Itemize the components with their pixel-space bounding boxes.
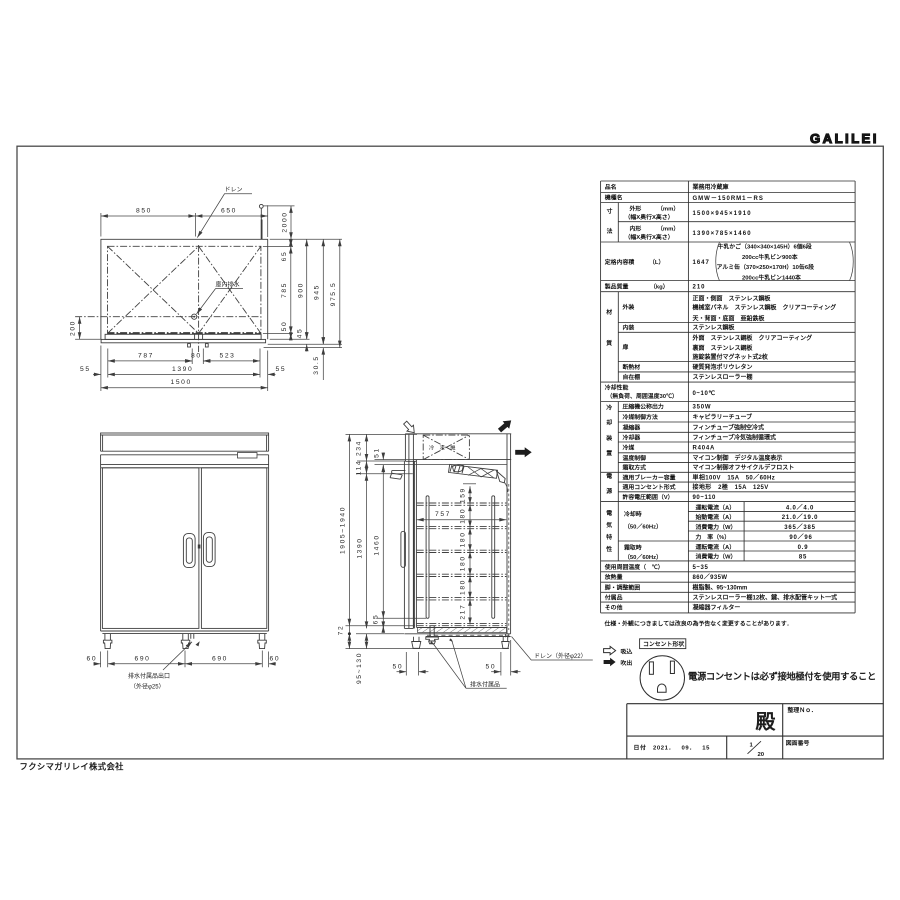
- svg-text:690: 690: [212, 656, 228, 663]
- svg-text:質: 質: [606, 339, 612, 347]
- svg-text:霜取方式: 霜取方式: [622, 464, 647, 472]
- svg-text:法: 法: [607, 227, 613, 235]
- svg-text:R404A: R404A: [693, 446, 716, 452]
- svg-text:樹脂製、95~130mm: 樹脂製、95~130mm: [693, 583, 748, 591]
- svg-text:523: 523: [220, 352, 236, 359]
- svg-text:適用コンセント形式: 適用コンセント形式: [623, 483, 676, 491]
- svg-text:冷 凍 機: 冷 凍 機: [429, 444, 457, 452]
- svg-text:90／96: 90／96: [789, 533, 812, 541]
- svg-text:1647: 1647: [693, 260, 710, 266]
- svg-text:1500: 1500: [171, 379, 192, 386]
- svg-text:装: 装: [605, 434, 612, 442]
- svg-text:80: 80: [191, 352, 202, 359]
- svg-text:159: 159: [459, 487, 466, 503]
- svg-text:51: 51: [373, 447, 380, 458]
- svg-text:製品質量: 製品質量: [604, 283, 629, 291]
- svg-text:234: 234: [356, 440, 363, 456]
- svg-text:200: 200: [69, 320, 76, 336]
- svg-text:施錠装置付マグネット式2枚: 施錠装置付マグネット式2枚: [693, 353, 768, 361]
- svg-text:（幅X奥行X高さ）: （幅X奥行X高さ）: [625, 233, 674, 241]
- svg-text:757: 757: [435, 511, 451, 518]
- svg-text:性: 性: [605, 545, 612, 553]
- svg-text:0~10℃: 0~10℃: [693, 390, 716, 397]
- svg-text:365／385: 365／385: [784, 523, 816, 531]
- svg-text:50: 50: [281, 321, 288, 332]
- svg-text:4.0／4.0: 4.0／4.0: [786, 503, 814, 511]
- svg-text:単相100V 15A 50／60Hz: 単相100V 15A 50／60Hz: [693, 473, 776, 481]
- svg-text:品名: 品名: [605, 183, 617, 191]
- svg-text:1905~1940: 1905~1940: [340, 506, 347, 554]
- svg-text:ドレン（外径φ22）: ドレン（外径φ22）: [534, 652, 587, 660]
- svg-text:運転電流（A）: 運転電流（A）: [696, 543, 736, 551]
- svg-text:牛乳かご（340×340×145H）6個6段: 牛乳かご（340×340×145H）6個6段: [718, 243, 812, 251]
- svg-text:1390: 1390: [172, 366, 193, 373]
- svg-text:仕様・外観につきましては改良の為予告なく変更することがありま: 仕様・外観につきましては改良の為予告なく変更することがあります．: [604, 619, 793, 627]
- svg-text:冷却性能: 冷却性能: [605, 383, 629, 391]
- svg-text:85: 85: [799, 555, 807, 561]
- svg-text:180: 180: [459, 579, 466, 595]
- svg-text:付属品: 付属品: [605, 593, 623, 601]
- svg-text:（L）: （L）: [649, 258, 664, 266]
- svg-text:凝縮器フィルター: 凝縮器フィルター: [693, 604, 741, 612]
- svg-text:フィンチューブ強制空冷式: フィンチューブ強制空冷式: [693, 423, 765, 431]
- svg-text:硬質発泡ポリウレタン: 硬質発泡ポリウレタン: [693, 363, 753, 371]
- svg-text:1: 1: [750, 743, 754, 749]
- svg-text:60: 60: [270, 656, 281, 663]
- svg-text:（幅X奥行X高さ）: （幅X奥行X高さ）: [625, 213, 674, 221]
- svg-text:機械室パネル ステンレス鋼板 クリアコーティング: 機械室パネル ステンレス鋼板 クリアコーティング: [693, 303, 837, 311]
- svg-text:適用ブレーカー容量: 適用ブレーカー容量: [623, 473, 676, 481]
- svg-text:殿: 殿: [755, 711, 777, 734]
- svg-text:冷媒: 冷媒: [623, 444, 635, 452]
- svg-text:源: 源: [606, 487, 612, 495]
- svg-text:特: 特: [606, 533, 612, 541]
- svg-text:排水付属品出口: 排水付属品出口: [128, 672, 170, 680]
- svg-text:GMW－150RM1－RS: GMW－150RM1－RS: [693, 196, 764, 202]
- svg-text:（mm）: （mm）: [657, 205, 679, 213]
- svg-text:60: 60: [87, 656, 98, 663]
- svg-text:0.9: 0.9: [798, 545, 809, 551]
- svg-text:65: 65: [373, 614, 380, 625]
- svg-text:1460: 1460: [374, 534, 381, 555]
- svg-text:（50／60Hz）: （50／60Hz）: [624, 523, 662, 531]
- svg-text:5~35: 5~35: [693, 565, 709, 571]
- svg-text:マイコン制御オフサイクルデフロスト: マイコン制御オフサイクルデフロスト: [693, 464, 795, 472]
- svg-text:1390: 1390: [357, 537, 364, 558]
- svg-text:マイコン制御 デジタル温度表示: マイコン制御 デジタル温度表示: [693, 454, 783, 462]
- svg-text:その他: その他: [605, 604, 623, 612]
- svg-text:2000: 2000: [282, 211, 289, 232]
- svg-text:（無負荷、周囲温度30℃）: （無負荷、周囲温度30℃）: [607, 392, 678, 400]
- svg-text:冷: 冷: [606, 404, 612, 412]
- svg-text:排水付属品: 排水付属品: [470, 680, 500, 688]
- svg-text:（mm）: （mm）: [657, 225, 679, 233]
- svg-text:外形: 外形: [630, 205, 642, 213]
- svg-text:始動電流（A）: 始動電流（A）: [696, 513, 736, 521]
- svg-text:電: 電: [606, 509, 612, 517]
- svg-text:ステンレスローラー棚12枚、鍵、排水配管キット一式: ステンレスローラー棚12枚、鍵、排水配管キット一式: [693, 593, 838, 601]
- svg-text:キャピラリーチューブ: キャピラリーチューブ: [693, 413, 753, 421]
- svg-text:吹出: 吹出: [621, 659, 633, 667]
- svg-text:900: 900: [297, 282, 304, 298]
- svg-text:95~130: 95~130: [356, 652, 363, 684]
- svg-text:200cc牛乳ビン900本: 200cc牛乳ビン900本: [742, 253, 798, 261]
- svg-text:ドレン: ドレン: [225, 188, 243, 194]
- svg-text:定格内容積: 定格内容積: [604, 258, 635, 266]
- svg-text:1500×945×1910: 1500×945×1910: [693, 211, 752, 217]
- svg-text:180: 180: [459, 531, 466, 547]
- svg-text:業務用冷蔵庫: 業務用冷蔵庫: [692, 183, 729, 191]
- svg-text:使用周囲温度（ ℃）: 使用周囲温度（ ℃）: [604, 563, 664, 571]
- svg-text:内形: 内形: [630, 225, 642, 233]
- svg-text:冷却時: 冷却時: [624, 510, 642, 518]
- svg-text:冷却器: 冷却器: [623, 433, 641, 441]
- svg-text:凝縮器: 凝縮器: [623, 423, 641, 431]
- svg-text:材: 材: [605, 308, 612, 316]
- svg-text:21.0／19.0: 21.0／19.0: [782, 513, 819, 521]
- svg-text:217: 217: [459, 604, 466, 620]
- svg-text:180: 180: [459, 555, 466, 571]
- svg-text:電源コンセントは必ず接地極付を使用すること: 電源コンセントは必ず接地極付を使用すること: [688, 671, 876, 682]
- svg-text:1390×785×1460: 1390×785×1460: [693, 231, 752, 237]
- svg-text:860／935W: 860／935W: [693, 573, 728, 581]
- svg-text:機種名: 機種名: [605, 194, 623, 202]
- svg-text:GALILEI: GALILEI: [810, 131, 879, 146]
- svg-text:アルミ缶（370×250×170H）10缶6段: アルミ缶（370×250×170H）10缶6段: [717, 263, 815, 271]
- svg-text:50: 50: [393, 664, 404, 671]
- svg-text:350W: 350W: [693, 405, 712, 411]
- svg-text:外面 ステンレス鋼板 クリアコーティング: 外面 ステンレス鋼板 クリアコーティング: [692, 334, 813, 342]
- svg-text:電: 電: [606, 472, 612, 480]
- svg-text:正面・側面 ステンレス鋼板: 正面・側面 ステンレス鋼板: [693, 294, 772, 302]
- svg-text:天・背面・底面 亜鉛鉄板: 天・背面・底面 亜鉛鉄板: [693, 314, 766, 322]
- svg-text:却: 却: [606, 419, 612, 427]
- svg-text:図面番号: 図面番号: [786, 739, 810, 747]
- svg-text:日付 2021． 09． 15: 日付 2021． 09． 15: [634, 744, 711, 752]
- svg-text:55: 55: [80, 366, 91, 373]
- svg-text:力 率（%）: 力 率（%）: [696, 533, 731, 541]
- svg-text:冷媒制御方法: 冷媒制御方法: [623, 413, 658, 421]
- svg-text:温度制御: 温度制御: [623, 454, 647, 462]
- svg-text:吸込: 吸込: [621, 647, 633, 655]
- svg-text:50: 50: [486, 664, 497, 671]
- svg-text:寸: 寸: [607, 207, 613, 215]
- svg-text:コンセント形状: コンセント形状: [643, 640, 684, 648]
- svg-text:65: 65: [281, 251, 288, 262]
- svg-text:200cc牛乳ビン1440本: 200cc牛乳ビン1440本: [742, 274, 801, 282]
- svg-text:フクシマガリレイ株式会社: フクシマガリレイ株式会社: [20, 762, 125, 772]
- svg-text:72: 72: [338, 625, 345, 636]
- svg-text:外装: 外装: [623, 303, 635, 311]
- svg-text:785: 785: [281, 282, 288, 298]
- svg-text:945: 945: [314, 284, 321, 300]
- svg-text:30.5: 30.5: [313, 355, 320, 374]
- svg-text:霜取時: 霜取時: [623, 544, 642, 552]
- svg-text:（50／60Hz）: （50／60Hz）: [624, 553, 662, 561]
- svg-text:気: 気: [606, 521, 612, 529]
- svg-text:114: 114: [356, 460, 363, 475]
- svg-text:210: 210: [693, 285, 706, 291]
- svg-text:扉: 扉: [622, 343, 629, 351]
- svg-text:消費電力（W）: 消費電力（W）: [696, 553, 737, 561]
- svg-text:（kg）: （kg）: [650, 283, 669, 291]
- svg-text:（外径φ25）: （外径φ25）: [130, 683, 165, 691]
- svg-text:90~110: 90~110: [693, 495, 717, 501]
- svg-text:整理Ｎｏ．: 整理Ｎｏ．: [787, 706, 817, 714]
- svg-text:975.5: 975.5: [330, 282, 337, 307]
- svg-text:45: 45: [297, 328, 304, 339]
- svg-text:消費電力（W）: 消費電力（W）: [696, 523, 737, 531]
- svg-text:脚・調整範囲: 脚・調整範囲: [604, 583, 640, 591]
- svg-text:180: 180: [459, 508, 466, 524]
- svg-text:自在棚: 自在棚: [623, 373, 641, 381]
- svg-text:850: 850: [136, 208, 152, 215]
- svg-text:圧縮機公称出力: 圧縮機公称出力: [623, 403, 664, 411]
- svg-text:690: 690: [135, 656, 151, 663]
- svg-text:55: 55: [276, 366, 287, 373]
- svg-text:運転電流（A）: 運転電流（A）: [696, 503, 736, 511]
- svg-text:ステンレスローラー棚: ステンレスローラー棚: [693, 373, 753, 381]
- svg-text:置: 置: [606, 449, 612, 457]
- svg-text:787: 787: [138, 352, 154, 359]
- svg-text:裏面 ステンレス鋼板: 裏面 ステンレス鋼板: [692, 344, 754, 352]
- svg-text:20: 20: [758, 752, 765, 758]
- svg-text:許容電圧範囲（V）: 許容電圧範囲（V）: [623, 493, 674, 501]
- svg-text:650: 650: [221, 208, 237, 215]
- svg-text:断熱材: 断熱材: [623, 363, 641, 371]
- svg-text:放熱量: 放熱量: [604, 573, 623, 581]
- svg-text:内装: 内装: [623, 324, 635, 332]
- svg-text:接地形 2極 15A 125V: 接地形 2極 15A 125V: [692, 483, 769, 491]
- svg-text:ステンレス鋼板: ステンレス鋼板: [693, 324, 736, 332]
- svg-text:フィンチューブ冷気強制循環式: フィンチューブ冷気強制循環式: [693, 433, 777, 441]
- svg-text:庫内排水: 庫内排水: [216, 280, 240, 288]
